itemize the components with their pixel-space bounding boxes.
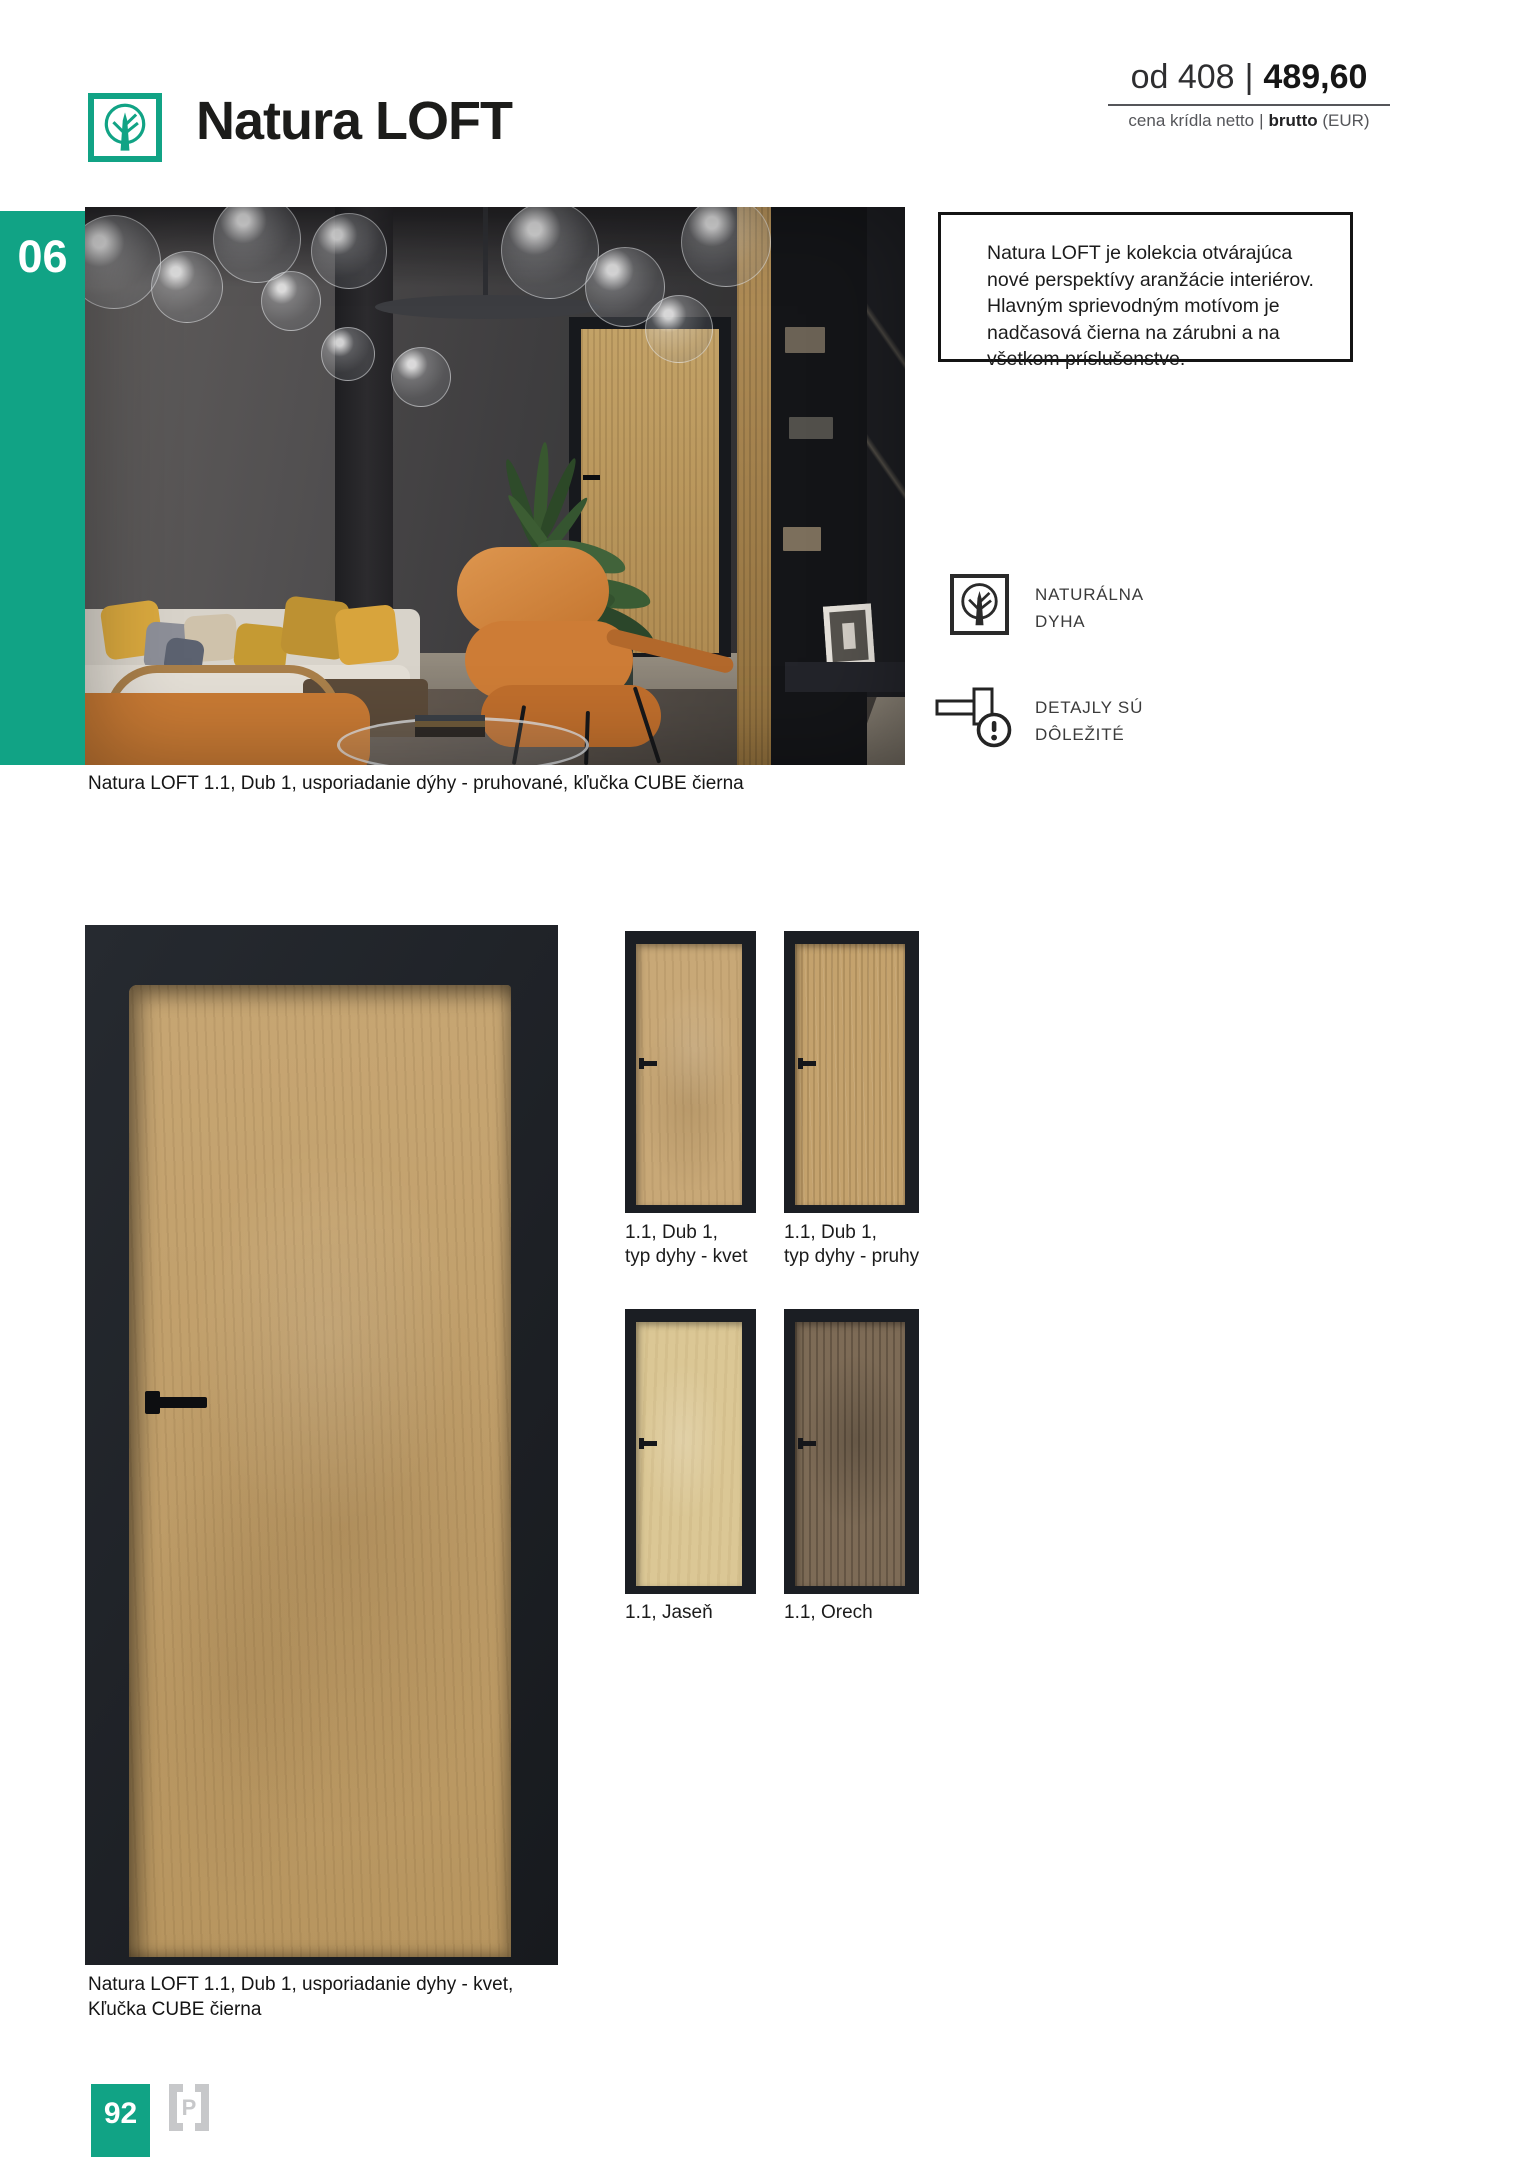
page-number-badge: 92 [91, 2084, 150, 2157]
swatch-label-jasen: 1.1, Jaseň [625, 1601, 713, 1625]
price-separator: | [1235, 58, 1264, 96]
publisher-logo: P [169, 2084, 209, 2131]
door-caption-line: Natura LOFT 1.1, Dub 1, usporiadanie dyh… [88, 1972, 513, 1997]
feature-label-line: NATURÁLNA [1035, 581, 1144, 608]
swatch-label-line: 1.1, Orech [784, 1601, 873, 1625]
swatch-dub-pruhy [784, 931, 919, 1213]
price-caption-currency: (EUR) [1322, 111, 1369, 130]
swatch-handle [799, 1061, 816, 1066]
chapter-number: 06 [0, 231, 85, 283]
swatch-leaf [636, 1322, 742, 1586]
swatch-label-orech: 1.1, Orech [784, 1601, 873, 1625]
price-caption-separator: | [1254, 111, 1268, 130]
swatch-leaf [795, 944, 905, 1205]
swatch-label-line: 1.1, Dub 1, [784, 1221, 919, 1245]
natural-veneer-icon [950, 574, 1009, 635]
chapter-sidebar: 06 [0, 211, 85, 765]
feature-label-line: DYHA [1035, 608, 1144, 635]
swatch-leaf [636, 944, 742, 1205]
swatch-label-line: typ dyhy - kvet [625, 1245, 748, 1269]
collection-description-box: Natura LOFT je kolekcia otvárajúca nové … [938, 212, 1353, 362]
price-caption: cena krídla netto|brutto (EUR) [1108, 111, 1390, 131]
swatch-leaf [795, 1322, 905, 1586]
swatch-dub-kvet [625, 931, 756, 1213]
door-leaf-dub-kvet [129, 985, 511, 1957]
swatch-handle [799, 1441, 816, 1446]
swatch-handle [640, 1061, 657, 1066]
door-figure-caption: Natura LOFT 1.1, Dub 1, usporiadanie dyh… [88, 1972, 513, 2022]
natural-veneer-label: NATURÁLNA DYHA [1035, 581, 1144, 635]
door-caption-line: Kľučka CUBE čierna [88, 1997, 513, 2022]
door-product-photo [85, 925, 558, 1965]
page-title: Natura LOFT [196, 90, 512, 152]
price-line: od 408|489,60 [1108, 58, 1390, 97]
swatch-label-line: typ dyhy - pruhy [784, 1245, 919, 1269]
catalog-page: Natura LOFT od 408|489,60 cena krídla ne… [0, 0, 1527, 2160]
feature-label-line: DETAJLY SÚ [1035, 694, 1143, 721]
swatch-label-line: 1.1, Jaseň [625, 1601, 713, 1625]
swatch-label-dub-kvet: 1.1, Dub 1, typ dyhy - kvet [625, 1221, 748, 1269]
price-caption-brutto: brutto [1269, 111, 1318, 130]
price-block: od 408|489,60 cena krídla netto|brutto (… [1108, 58, 1390, 131]
price-divider [1108, 104, 1390, 106]
tree-icon [954, 578, 1005, 631]
hero-interior-photo [85, 207, 905, 765]
swatch-jasen [625, 1309, 756, 1594]
page-number: 92 [91, 2097, 150, 2131]
hero-photo-caption: Natura LOFT 1.1, Dub 1, usporiadanie dýh… [88, 773, 744, 795]
tree-icon [94, 99, 156, 156]
feature-label-line: DÔLEŽITÉ [1035, 721, 1143, 748]
swatch-handle [640, 1441, 657, 1446]
swatch-label-dub-pruhy: 1.1, Dub 1, typ dyhy - pruhy [784, 1221, 919, 1269]
price-netto: od 408 [1131, 58, 1235, 96]
brand-tree-logo [88, 93, 162, 162]
cube-handle-black [149, 1397, 207, 1408]
door-handle-alert-icon [934, 684, 1018, 748]
scene-vignette [85, 207, 905, 765]
details-important-label: DETAJLY SÚ DÔLEŽITÉ [1035, 694, 1143, 748]
price-caption-netto: cena krídla netto [1128, 111, 1254, 130]
publisher-logo-letter: P [169, 2084, 209, 2131]
price-brutto: 489,60 [1263, 58, 1367, 96]
swatch-label-line: 1.1, Dub 1, [625, 1221, 748, 1245]
swatch-orech [784, 1309, 919, 1594]
